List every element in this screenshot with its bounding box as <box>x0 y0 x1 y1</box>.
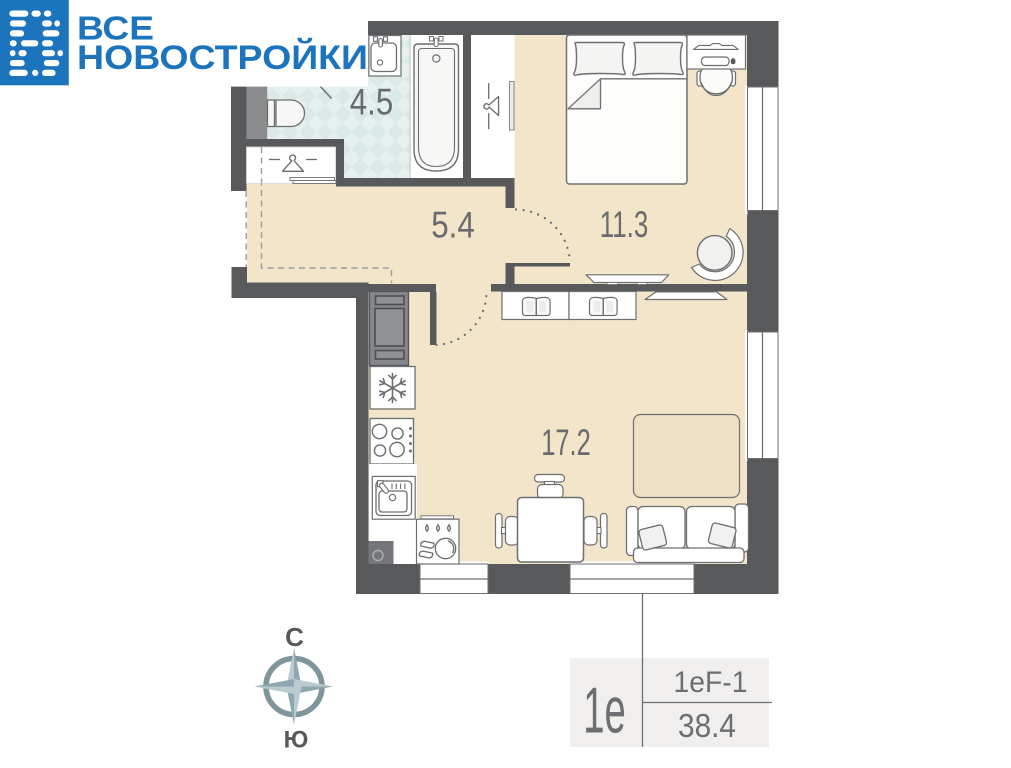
svg-text:5.4: 5.4 <box>431 204 475 245</box>
svg-text:С: С <box>285 622 304 652</box>
svg-text:11.3: 11.3 <box>600 204 649 245</box>
svg-text:Ю: Ю <box>284 727 309 754</box>
svg-text:1eF-1: 1eF-1 <box>674 666 748 699</box>
svg-text:НОВОСТРОЙКИ: НОВОСТРОЙКИ <box>77 37 368 77</box>
svg-text:4.5: 4.5 <box>350 82 394 123</box>
svg-text:17.2: 17.2 <box>541 422 591 463</box>
svg-text:38.4: 38.4 <box>678 707 736 744</box>
svg-text:1е: 1е <box>583 674 626 747</box>
